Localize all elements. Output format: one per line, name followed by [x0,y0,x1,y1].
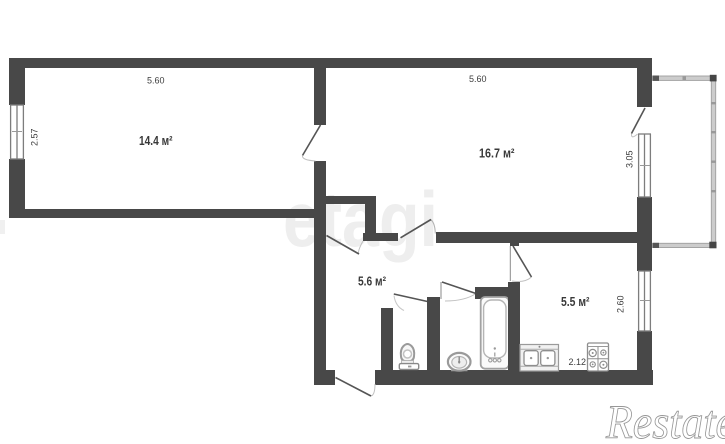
svg-text:etagi: etagi [283,175,438,263]
svg-text:2.12: 2.12 [569,357,587,367]
svg-text:2.60: 2.60 [616,295,626,313]
svg-text:Restate: Restate [605,396,725,444]
svg-text:14.4 м²: 14.4 м² [139,133,173,148]
svg-text:5.5 м²: 5.5 м² [561,294,590,309]
svg-text:5.6 м²: 5.6 м² [358,274,387,289]
svg-text:5.60: 5.60 [147,76,165,86]
svg-text:2.57: 2.57 [30,128,40,146]
svg-text:3.05: 3.05 [625,150,635,168]
svg-text:5.60: 5.60 [469,74,487,84]
svg-text:16.7 м²: 16.7 м² [479,146,515,161]
